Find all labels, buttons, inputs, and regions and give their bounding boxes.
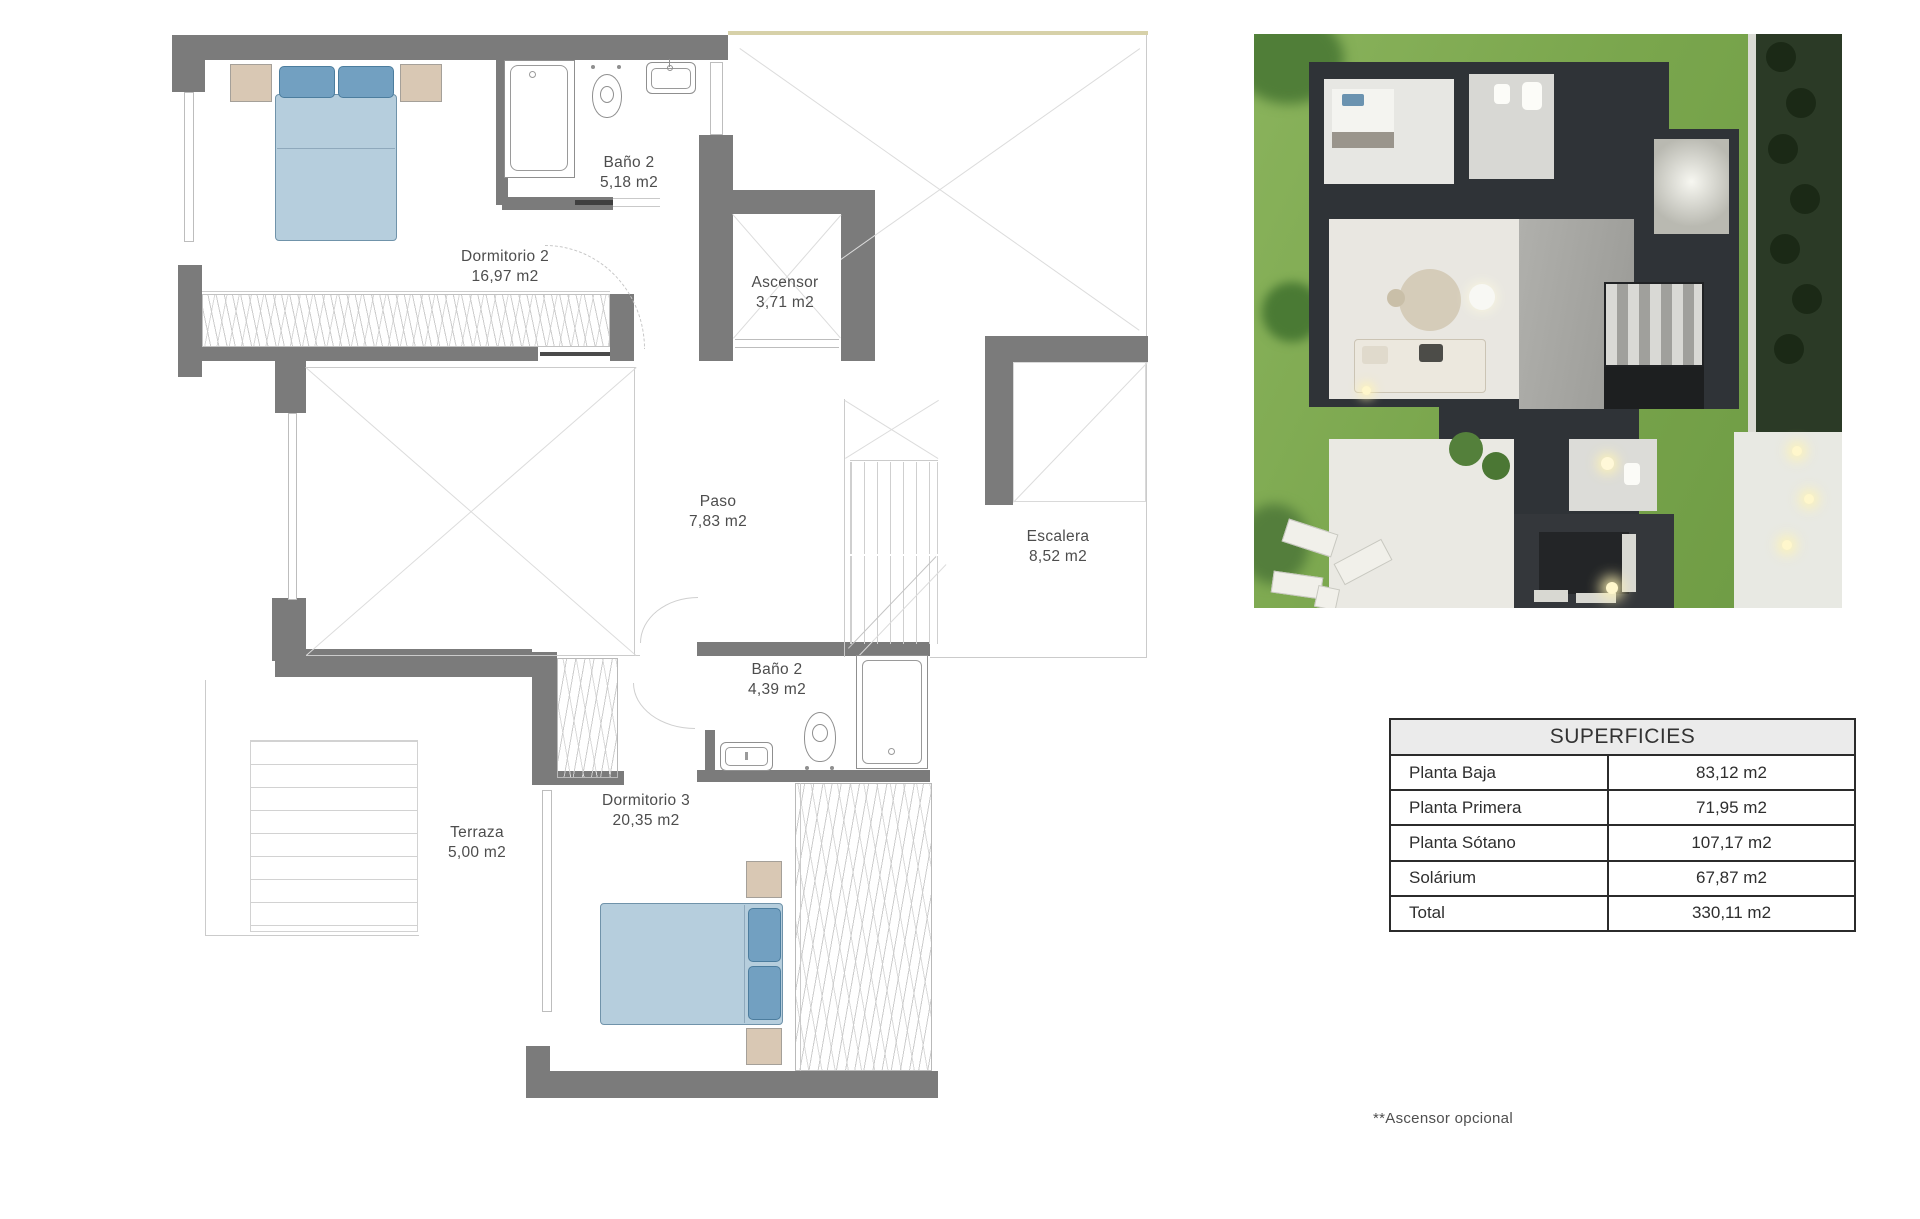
table-row: Planta Sótano 107,17 m2 [1391, 826, 1854, 861]
light-glow [1782, 540, 1792, 550]
room-label-paso: Paso7,83 m2 [689, 492, 747, 532]
wall-segment [985, 336, 1148, 362]
window [184, 92, 194, 242]
tree-icon [1770, 234, 1800, 264]
tree-icon [1792, 284, 1822, 314]
elevator-wall [841, 214, 875, 361]
tree-icon [1774, 334, 1804, 364]
room-label-terraza: Terraza5,00 m2 [448, 823, 506, 863]
tree-icon [1768, 134, 1798, 164]
elevator-wall [699, 135, 733, 361]
bed [275, 94, 397, 241]
bed-pillow [338, 66, 394, 98]
render-bathroom-bottom [1569, 439, 1657, 511]
footnote-elevator-optional: **Ascensor opcional [1373, 1110, 1513, 1127]
render-lit-room [1654, 139, 1729, 234]
terrace-slats [250, 740, 418, 932]
table-row: Planta Primera 71,95 m2 [1391, 791, 1854, 826]
tree-icon [1786, 88, 1816, 118]
render-bedroom-top [1324, 79, 1454, 184]
bed-pillow [748, 966, 781, 1020]
elevator-door-line [735, 339, 839, 348]
table-row-label: Planta Primera [1391, 791, 1609, 824]
wardrobe-edge-line [800, 783, 801, 1071]
sliding-door [542, 790, 552, 1012]
table-row-value: 71,95 m2 [1609, 791, 1854, 824]
roof-edge-line [728, 31, 1148, 35]
bed-pillow [279, 66, 335, 98]
room-label-dormitorio-3: Dormitorio 320,35 m2 [602, 791, 690, 831]
table-row-value: 67,87 m2 [1609, 862, 1854, 895]
void-edge [634, 367, 635, 655]
render-walkway [1734, 432, 1842, 608]
wall-segment [697, 642, 930, 656]
shower-icon [856, 655, 928, 769]
stair-treads [850, 462, 938, 554]
light-glow [1606, 582, 1618, 594]
door-swing-arc [633, 683, 695, 729]
wall-segment [532, 652, 557, 782]
table-icon [1314, 585, 1340, 608]
wardrobe-hatch [795, 783, 932, 1071]
nightstand [746, 1028, 782, 1065]
bed-pillow [748, 908, 781, 962]
table-row-value: 107,17 m2 [1609, 826, 1854, 859]
bed-sheet-line [277, 148, 395, 149]
floor-plan: Dormitorio 216,97 m2 Baño 25,18 m2 Ascen… [0, 0, 1190, 1120]
room-label-ascensor: Ascensor3,71 m2 [751, 273, 818, 313]
bathtub-icon [504, 60, 575, 178]
table-row-value: 330,11 m2 [1609, 897, 1854, 930]
toilet-icon [588, 62, 626, 122]
table-row-label: Planta Sótano [1391, 826, 1609, 859]
stair-tread-line [850, 460, 938, 461]
surfaces-table-title: SUPERFICIES [1391, 720, 1854, 756]
wall-segment [275, 649, 532, 677]
render-3d-image [1254, 34, 1842, 608]
room-label-escalera: Escalera8,52 m2 [1027, 527, 1090, 567]
void-edge [306, 367, 636, 368]
room-label-dormitorio-2: Dormitorio 216,97 m2 [461, 247, 549, 287]
plant-icon [1449, 432, 1483, 466]
table-row-value: 83,12 m2 [1609, 756, 1854, 789]
wall-segment [181, 347, 538, 361]
wall-segment [985, 362, 1013, 505]
window [710, 62, 723, 135]
wall-segment [275, 361, 306, 413]
page: { "plan": { "rooms": [ {"name": "Dormito… [0, 0, 1920, 1219]
render-bedroom-bottom [1514, 514, 1674, 608]
door-swing-arc [545, 245, 645, 349]
wardrobe-hatch [557, 658, 618, 778]
tree-icon [1790, 184, 1820, 214]
table-row: Total 330,11 m2 [1391, 897, 1854, 930]
stairwell-bottom-line [930, 657, 1147, 658]
nightstand [400, 64, 442, 102]
surfaces-table: SUPERFICIES Planta Baja 83,12 m2 Planta … [1389, 718, 1856, 932]
door-line [613, 198, 660, 207]
table-row-label: Solárium [1391, 862, 1609, 895]
door-swing-arc [640, 597, 698, 643]
sink-icon [646, 62, 696, 94]
tree-icon [1766, 42, 1796, 72]
terrace-edge [205, 680, 206, 936]
light-glow [1362, 386, 1371, 395]
wall-segment [526, 1071, 938, 1098]
render-living-room [1329, 219, 1519, 399]
table-row: Solárium 67,87 m2 [1391, 862, 1854, 897]
nightstand [746, 861, 782, 898]
window [288, 413, 297, 600]
terrace-edge [205, 935, 419, 936]
light-glow [1804, 494, 1814, 504]
render-wall-line [1748, 34, 1756, 432]
nightstand [230, 64, 272, 102]
light-glow [1792, 446, 1802, 456]
void-edge [306, 655, 640, 656]
room-label-bano-2-top: Baño 25,18 m2 [600, 153, 658, 193]
elevator-wall [733, 190, 875, 214]
wall-segment [177, 35, 728, 60]
table-row-label: Planta Baja [1391, 756, 1609, 789]
wall-segment [172, 35, 205, 92]
room-label-bano-2-bottom: Baño 24,39 m2 [748, 660, 806, 700]
plant-icon [1482, 452, 1510, 480]
toilet-icon [800, 710, 840, 774]
wall-segment [705, 730, 715, 775]
table-row-label: Total [1391, 897, 1609, 930]
render-bathroom-top [1469, 74, 1554, 179]
render-stairs [1604, 282, 1704, 367]
table-row: Planta Baja 83,12 m2 [1391, 756, 1854, 791]
bed-sheet-line [744, 905, 745, 1023]
render-stairwell-dark [1604, 367, 1704, 409]
sink-icon [720, 742, 773, 771]
stair-edge [844, 399, 845, 657]
door-threshold [575, 200, 613, 205]
door-leaf [540, 352, 610, 356]
